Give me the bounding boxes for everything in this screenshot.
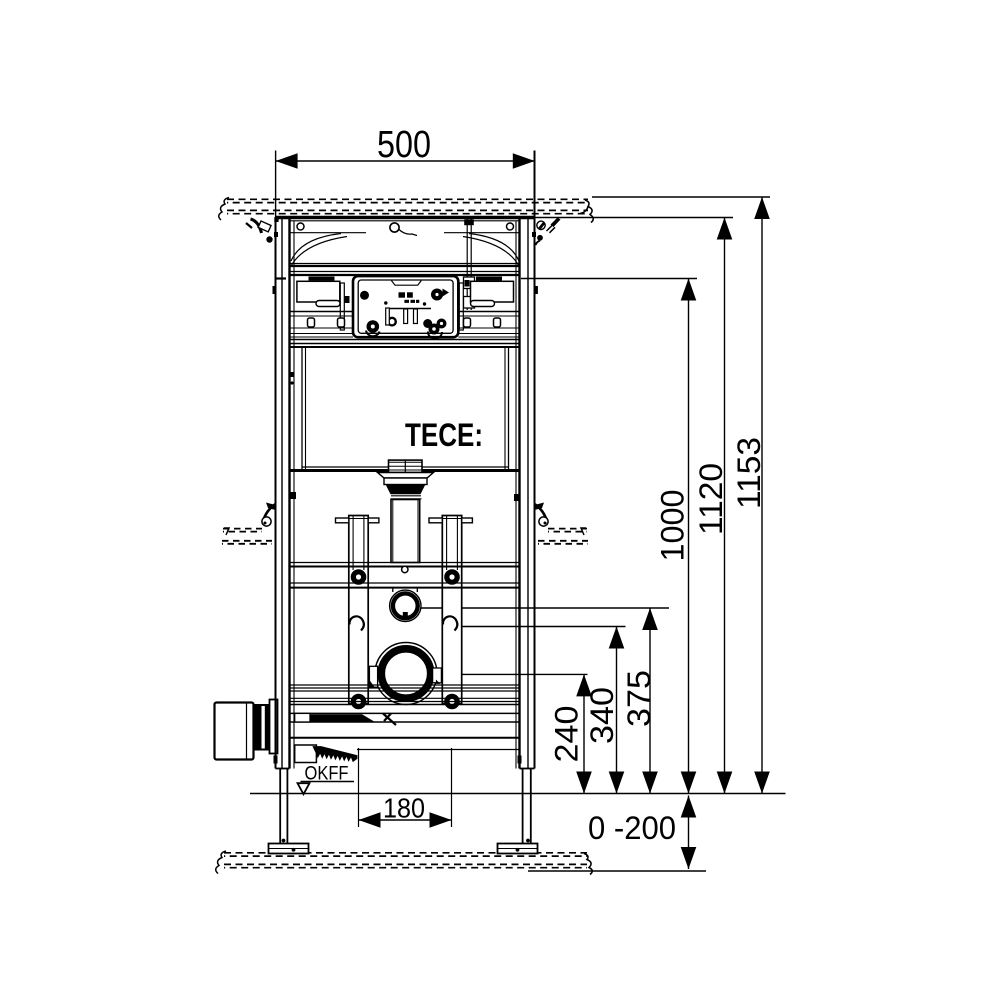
svg-text:TECE:: TECE:: [405, 417, 483, 453]
svg-text:240: 240: [549, 706, 585, 763]
svg-text:375: 375: [621, 670, 657, 727]
svg-text:340: 340: [584, 687, 620, 744]
svg-text:1153: 1153: [731, 437, 767, 509]
svg-text:500: 500: [377, 124, 431, 166]
svg-text:1000: 1000: [655, 490, 691, 562]
svg-text:180: 180: [383, 793, 425, 824]
svg-text:1120: 1120: [693, 463, 729, 535]
svg-text:0 -200: 0 -200: [588, 810, 676, 846]
